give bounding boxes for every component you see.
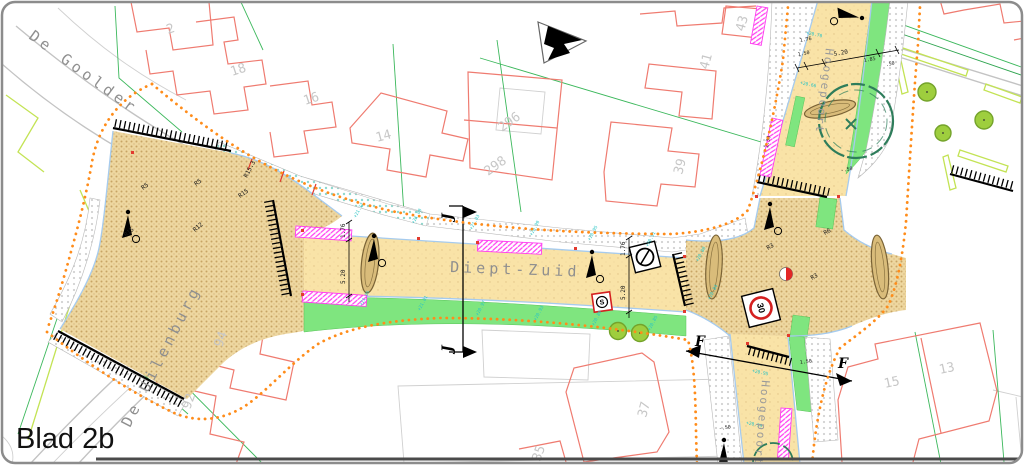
tree-icon <box>935 125 951 141</box>
joint-marker <box>131 151 134 154</box>
survey-point <box>780 268 793 281</box>
sheet-title: Blad 2b <box>16 423 114 455</box>
section-label-f: F <box>837 356 849 372</box>
site-plan-sheet: 30 S <box>0 0 1024 465</box>
joint-marker <box>417 237 420 240</box>
bollard-marker: S <box>592 292 612 312</box>
joint-marker <box>476 241 479 244</box>
joint-marker <box>683 255 686 258</box>
zone-30-sign: 30 <box>742 289 781 328</box>
dimension-label: 1.76 <box>340 223 347 238</box>
joint-marker <box>755 195 758 198</box>
site-plan-drawing: 30 S <box>0 0 1024 465</box>
dimension-label: 5.20 <box>620 285 627 300</box>
building-number: 13 <box>938 360 956 378</box>
joint-marker <box>301 293 304 296</box>
joint-marker <box>746 342 749 345</box>
joint-marker <box>301 229 304 232</box>
joint-marker <box>787 334 790 337</box>
tree-icon <box>975 111 993 129</box>
joint-marker <box>837 195 840 198</box>
dimension-label: 1.76 <box>620 241 627 256</box>
section-label-f: F <box>694 334 706 350</box>
joint-marker <box>683 310 686 313</box>
building-number: 15 <box>883 374 901 392</box>
dimension-label: 5.20 <box>340 269 347 284</box>
joint-marker <box>574 247 577 250</box>
tree-icon <box>918 83 936 101</box>
tree-icon <box>610 323 627 340</box>
